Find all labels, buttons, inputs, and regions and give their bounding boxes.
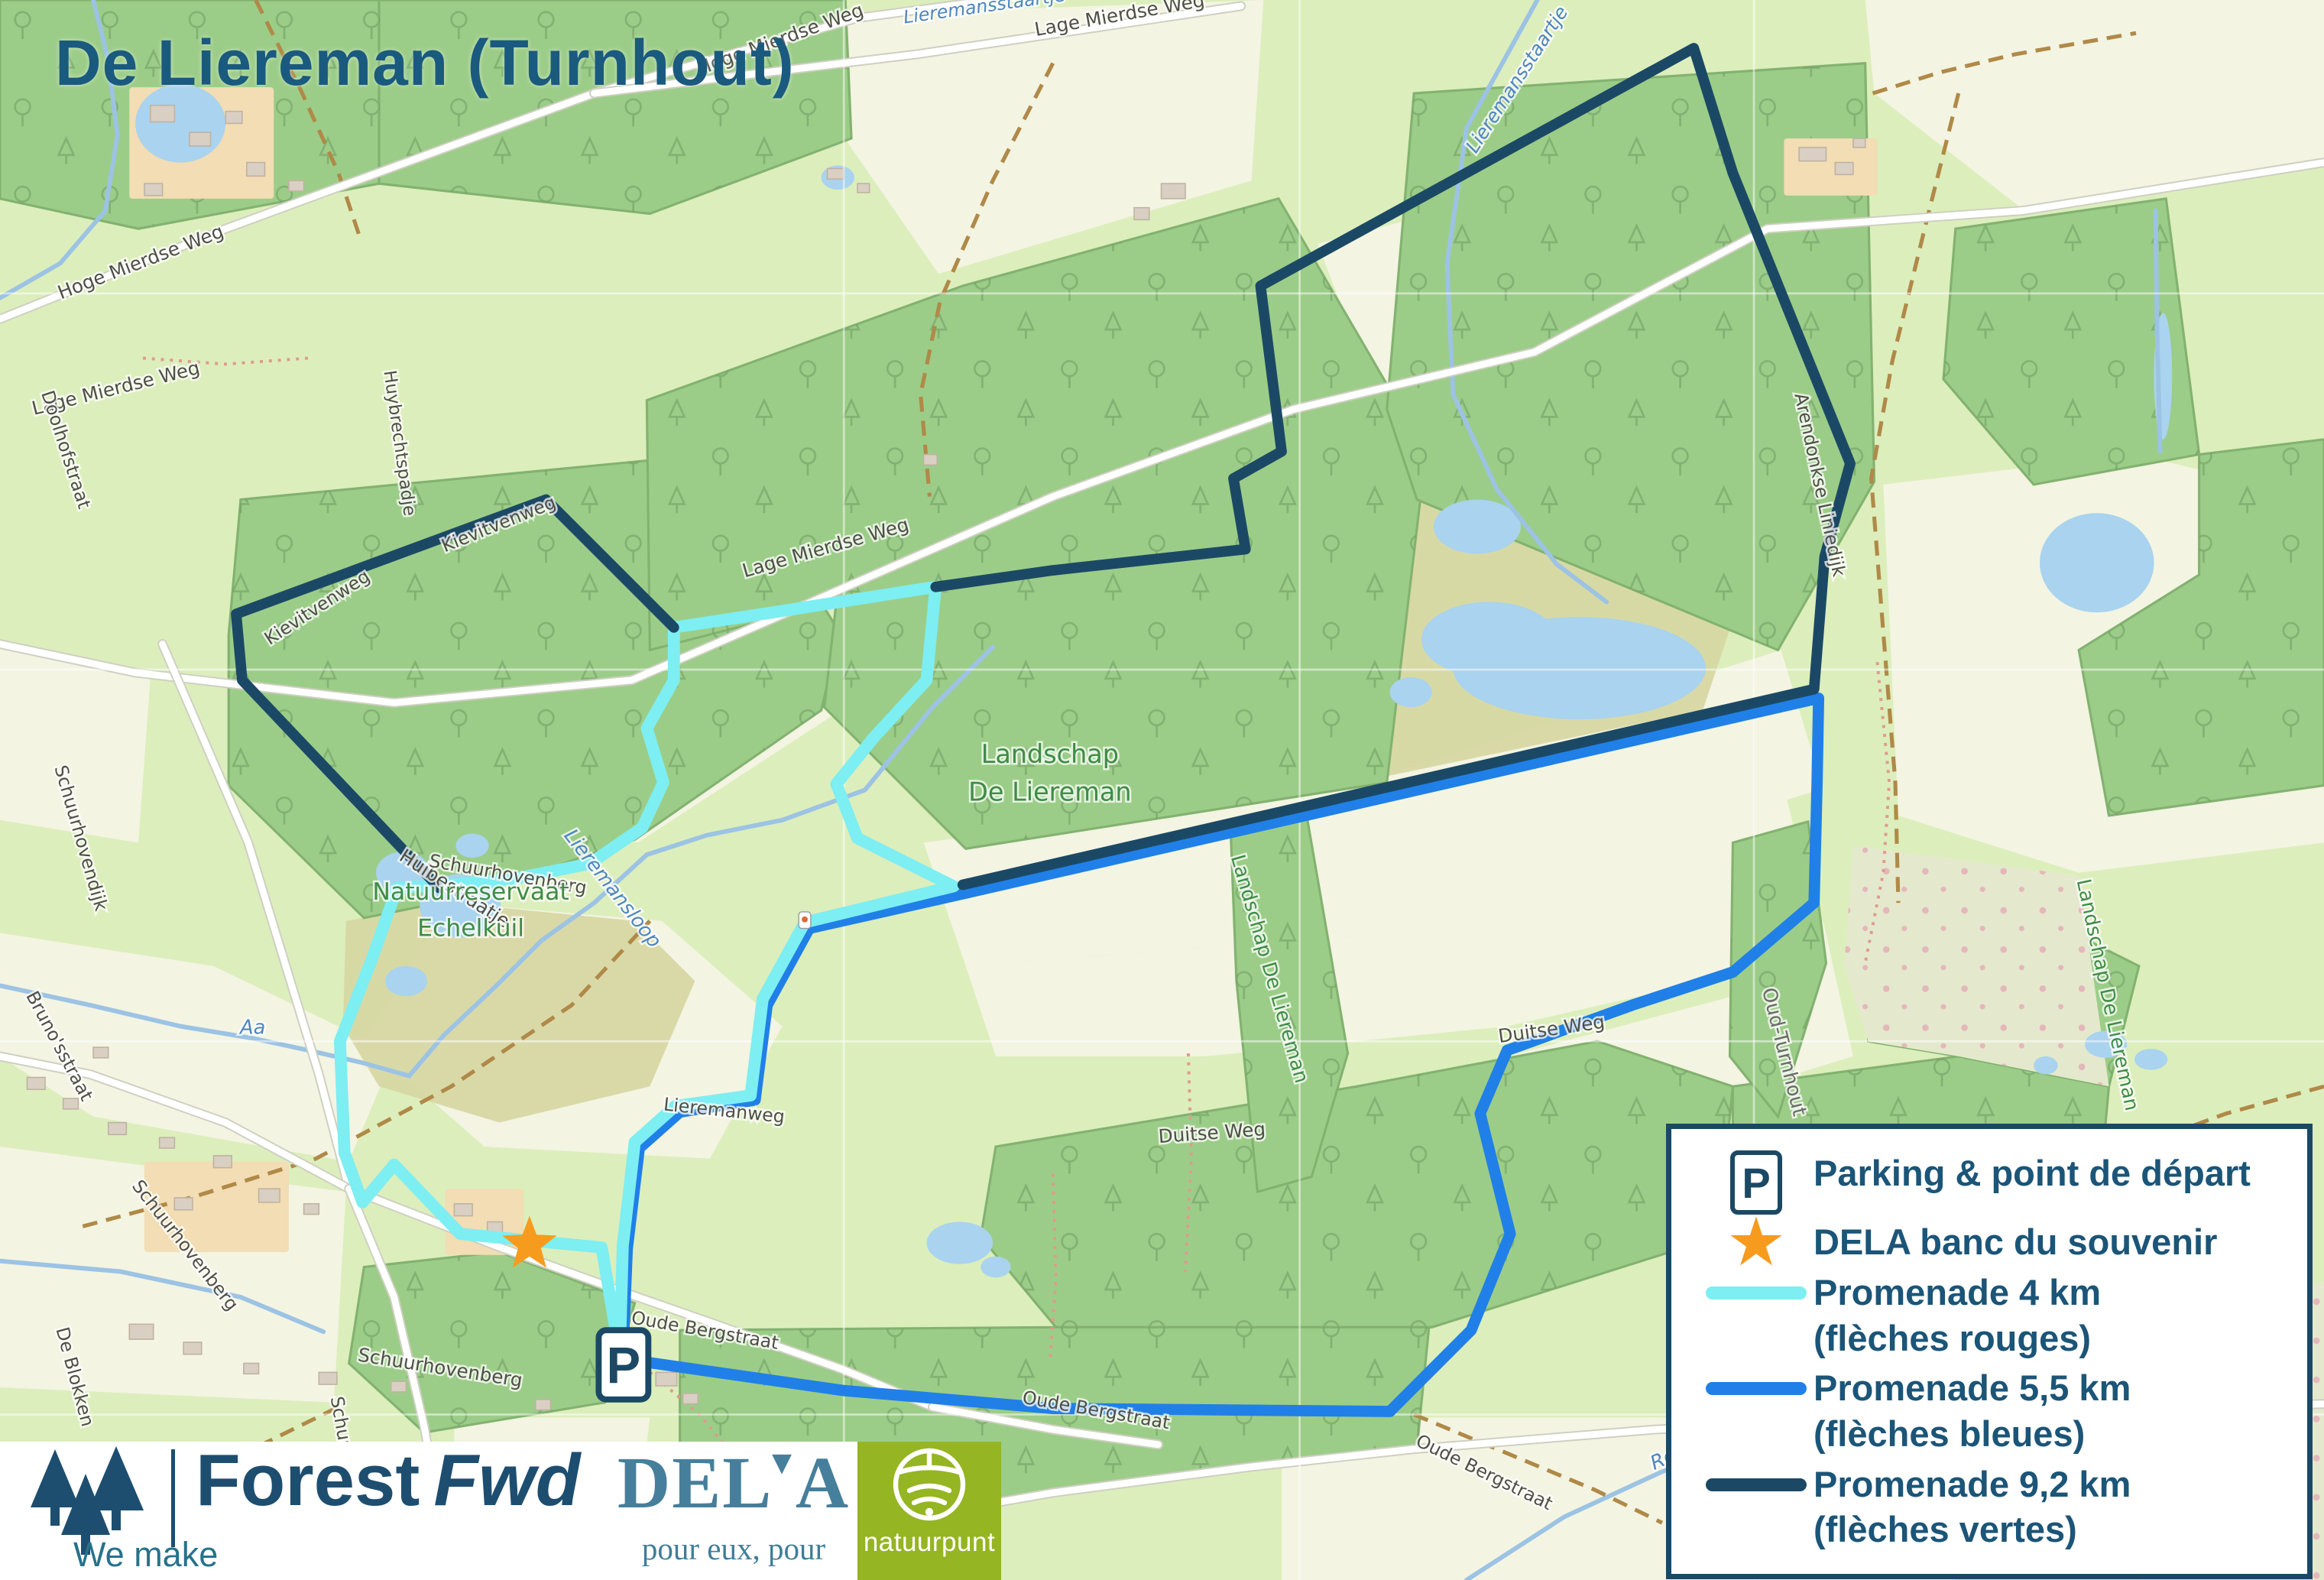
building (109, 1123, 127, 1135)
water-body (926, 1221, 993, 1264)
legend-label: Promenade 9,2 km(flèches vertes) (1813, 1462, 2131, 1552)
building (1799, 148, 1826, 161)
forestfwd-logo: ForestFwd (196, 1439, 580, 1523)
building (225, 112, 242, 124)
water-body (2134, 1049, 2167, 1070)
building (536, 1400, 551, 1410)
legend-row-trail-4km: Promenade 4 km(flèches rouges) (1699, 1270, 2292, 1361)
trail-navy-swatch (1706, 1478, 1807, 1491)
building (93, 1047, 109, 1058)
building (1853, 138, 1865, 148)
water-body (385, 966, 427, 996)
water-body (980, 1257, 1010, 1278)
building (244, 1364, 259, 1374)
legend-row-trail-92km: Promenade 9,2 km(flèches vertes) (1699, 1462, 2292, 1552)
legend-label: DELA banc du souvenir (1813, 1219, 2217, 1265)
legend-row-star: ★ DELA banc du souvenir (1699, 1219, 2292, 1265)
building (683, 1393, 698, 1404)
map-label: Natuurreservaat (372, 878, 569, 906)
natuurpunt-logo: natuurpunt (857, 1442, 1001, 1580)
building (247, 163, 265, 177)
natuurpunt-bird-icon (883, 1442, 975, 1532)
forestfwd-tagline: We make sustainability happen. (73, 1535, 271, 1580)
building (924, 455, 938, 466)
building (190, 132, 211, 146)
building (857, 183, 870, 193)
water-body (1434, 500, 1521, 554)
building (213, 1156, 232, 1168)
waymark-shield-dot (802, 917, 808, 923)
legend-label: Promenade 4 km(flèches rouges) (1813, 1270, 2101, 1361)
page-title: De Liereman (Turnhout) (55, 26, 795, 100)
dela-logo: DEL▼A pour eux, pour vous (611, 1446, 856, 1580)
building (1134, 208, 1149, 220)
building (656, 1372, 677, 1386)
trail-cyan-swatch (1706, 1286, 1807, 1299)
dela-tagline: pour eux, pour vous (611, 1530, 856, 1580)
water-body (1390, 677, 1432, 707)
footer-divider (171, 1449, 175, 1547)
building (1162, 183, 1185, 199)
map-label: Aa (238, 1016, 265, 1039)
legend-row-trail-55km: Promenade 5,5 km(flèches bleues) (1699, 1365, 2292, 1456)
building (454, 1204, 472, 1216)
water-body (455, 834, 488, 858)
building (319, 1372, 337, 1384)
map-label: Echelkuil (417, 914, 524, 942)
legend-label: Parking & point de départ (1813, 1150, 2251, 1196)
building (174, 1198, 193, 1210)
building (160, 1137, 175, 1148)
legend-row-parking: P Parking & point de départ (1699, 1150, 2292, 1215)
building (289, 180, 304, 191)
building (1835, 163, 1853, 175)
building (144, 183, 163, 196)
building (304, 1204, 319, 1215)
map-parking-letter: P (607, 1337, 641, 1394)
map-label: De Liereman (968, 777, 1131, 806)
trail-blue-swatch (1706, 1382, 1807, 1395)
building (391, 1381, 407, 1392)
building (183, 1342, 202, 1355)
building (828, 168, 844, 179)
legend-panel: P Parking & point de départ ★ DELA banc … (1666, 1124, 2313, 1579)
building (151, 105, 174, 122)
star-icon: ★ (1726, 1219, 1787, 1265)
water-body (1421, 602, 1557, 676)
map-label: Landschap (981, 739, 1119, 769)
legend-label: Promenade 5,5 km(flèches bleues) (1813, 1365, 2131, 1456)
building (27, 1077, 45, 1089)
water-body (2034, 1056, 2057, 1075)
building (259, 1189, 280, 1202)
water-body (2040, 513, 2154, 612)
map-page: Hoge Mierdse WegHoge Mierdse WegLage Mie… (0, 0, 2324, 1580)
building (129, 1324, 153, 1339)
